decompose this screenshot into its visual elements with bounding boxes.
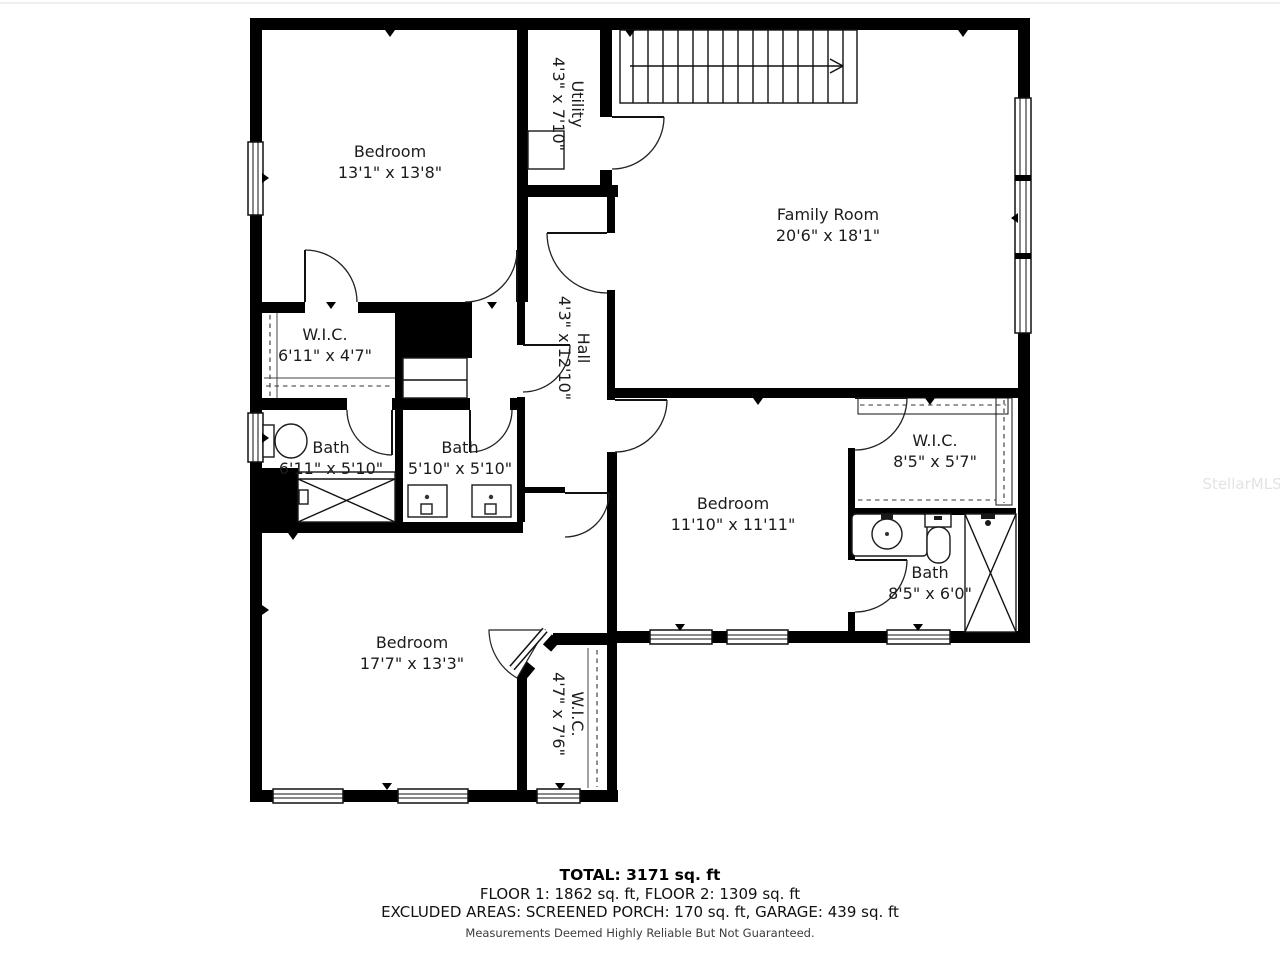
room-label-bedroom-middle: Bedroom 11'10" x 11'11": [671, 494, 796, 534]
room-dims: 11'10" x 11'11": [671, 515, 796, 534]
room-dims: 4'7" x 7'6": [549, 672, 568, 756]
windows: [248, 98, 1031, 803]
wall-segment: [250, 522, 523, 533]
door-diagonal: [489, 630, 545, 678]
door: [612, 117, 664, 169]
room-dims: 17'7" x 13'3": [360, 654, 464, 673]
total-area-text: TOTAL: 3171 sq. ft: [560, 866, 721, 884]
wall-segment: [615, 388, 1018, 398]
room-name: Bedroom: [376, 633, 448, 652]
room-dims: 5'10" x 5'10": [408, 459, 512, 478]
wall-segment: [517, 397, 525, 522]
room-label-bath-right: Bath 8'5" x 6'0": [888, 563, 972, 603]
room-name: Bath: [312, 438, 349, 457]
room-label-bedroom-lower-left: Bedroom 17'7" x 13'3": [360, 633, 464, 673]
room-name: Family Room: [777, 205, 879, 224]
room-name: Bath: [911, 563, 948, 582]
wall-segment: [517, 185, 618, 197]
linen-shelves: [403, 358, 467, 398]
wall-segment: [395, 410, 403, 522]
room-dims: 8'5" x 5'7": [893, 452, 977, 471]
wall-segment: [607, 452, 617, 802]
wall-segment: [395, 313, 403, 398]
wall-segment: [607, 197, 615, 233]
wall-segment: [600, 30, 612, 117]
room-label-wic-left: W.I.C. 6'11" x 4'7": [278, 325, 372, 365]
door: [347, 410, 392, 455]
shower: [965, 514, 1016, 632]
door: [615, 400, 667, 452]
room-name: Bath: [441, 438, 478, 457]
room-name: Bedroom: [697, 494, 769, 513]
wall-segment: [517, 302, 525, 345]
wall-segment: [517, 672, 527, 790]
floor-plan: Bedroom 13'1" x 13'8" Utility 4'3" x 7'1…: [0, 0, 1280, 960]
room-name: Hall: [574, 333, 593, 364]
window: [537, 789, 580, 803]
wall-diagonal-stub: [547, 638, 556, 648]
wall-segment: [607, 290, 615, 400]
room-dims: 4'3" x 12'10": [555, 296, 574, 400]
stellar-mls-watermark: StellarMLS: [1202, 475, 1280, 493]
window: [248, 413, 263, 462]
chase-block: [403, 302, 472, 358]
page-edge-line: [0, 2, 1280, 4]
window: [248, 142, 263, 215]
window: [727, 630, 788, 644]
room-label-hall: Hall 4'3" x 12'10": [555, 296, 593, 400]
room-label-bath-middle: Bath 5'10" x 5'10": [408, 438, 512, 478]
wall-segment: [262, 302, 305, 313]
wall-segment: [510, 398, 525, 410]
room-label-wic-lower: W.I.C. 4'7" x 7'6": [549, 672, 587, 756]
toilet: [263, 424, 307, 458]
bathtub: [298, 472, 395, 522]
area-summary: TOTAL: 3171 sq. ft FLOOR 1: 1862 sq. ft,…: [381, 866, 899, 940]
room-dims: 13'1" x 13'8": [338, 163, 442, 182]
room-dims: 6'11" x 5'10": [279, 459, 383, 478]
door: [465, 250, 517, 302]
wall-segment: [250, 18, 1030, 30]
sink-vanity: [852, 514, 927, 556]
room-label-family-room: Family Room 20'6" x 18'1": [776, 205, 880, 245]
sink-vanity: [472, 485, 511, 517]
door: [855, 398, 907, 450]
window: [398, 789, 468, 803]
window: [650, 630, 712, 644]
toilet: [925, 514, 951, 563]
disclaimer-text: Measurements Deemed Highly Reliable But …: [465, 926, 814, 940]
room-name: W.I.C.: [568, 691, 587, 736]
wall-segment: [250, 398, 347, 410]
room-name: Utility: [568, 80, 587, 127]
wall-segment: [523, 487, 565, 493]
room-dims: 8'5" x 6'0": [888, 584, 972, 603]
staircase: [620, 30, 857, 103]
walls: [250, 18, 1030, 802]
window: [273, 789, 343, 803]
wall-segment: [848, 612, 855, 640]
door: [305, 250, 357, 302]
wall-segment: [517, 30, 528, 302]
room-dims: 20'6" x 18'1": [776, 226, 880, 245]
fixtures: [263, 131, 1016, 632]
room-label-utility: Utility 4'3" x 7'10": [549, 57, 587, 151]
wall-segment: [553, 633, 609, 645]
room-dims: 6'11" x 4'7": [278, 346, 372, 365]
room-name: W.I.C.: [912, 431, 957, 450]
room-dims: 4'3" x 7'10": [549, 57, 568, 151]
excluded-areas-text: EXCLUDED AREAS: SCREENED PORCH: 170 sq. …: [381, 903, 899, 921]
room-labels: Bedroom 13'1" x 13'8" Utility 4'3" x 7'1…: [278, 57, 977, 756]
sink-vanity: [408, 485, 447, 517]
door: [565, 493, 609, 537]
room-name: Bedroom: [354, 142, 426, 161]
wall-segment: [600, 170, 612, 185]
door: [547, 233, 607, 293]
stair-direction-arrow: [630, 59, 843, 73]
room-label-bedroom-upper-left: Bedroom 13'1" x 13'8": [338, 142, 442, 182]
room-label-wic-right: W.I.C. 8'5" x 5'7": [893, 431, 977, 471]
wall-segment: [392, 398, 470, 410]
room-name: W.I.C.: [302, 325, 347, 344]
window: [887, 630, 950, 644]
floor-areas-text: FLOOR 1: 1862 sq. ft, FLOOR 2: 1309 sq. …: [480, 885, 800, 903]
